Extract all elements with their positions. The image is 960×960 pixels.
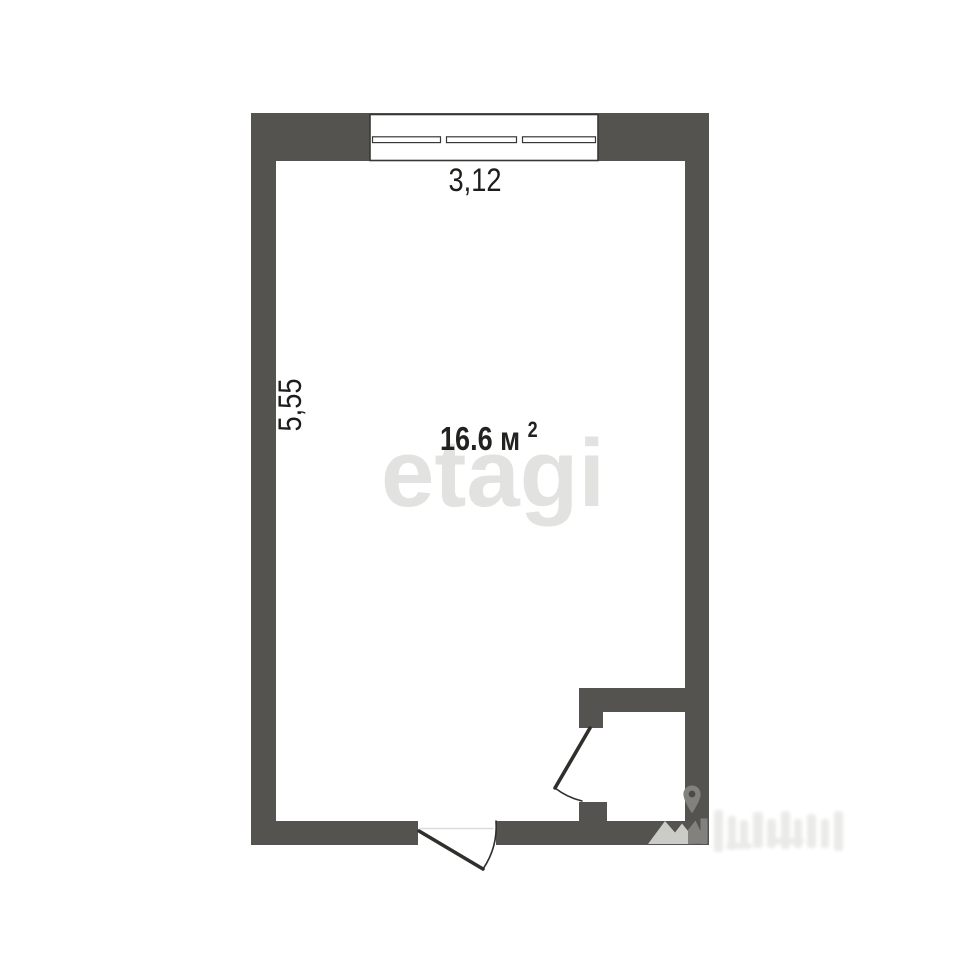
window-glazing-segment xyxy=(523,137,596,143)
interior-door-swing-arc xyxy=(555,788,582,801)
floorplan-drawing: etagi 3,12 5,55 16.6 м 2 xyxy=(0,0,960,960)
window xyxy=(370,115,598,161)
room-area-superscript: 2 xyxy=(528,418,538,442)
wall-right xyxy=(685,113,709,845)
wall-left xyxy=(251,113,276,845)
interior-door-leaf xyxy=(555,728,590,788)
partition-door-jamb-lower xyxy=(579,802,607,821)
doors xyxy=(419,728,590,869)
mountains-icon xyxy=(701,819,708,845)
illegible-watermark-text xyxy=(714,810,843,852)
entry-door-leaf xyxy=(419,831,483,869)
room-area-label: 16.6 м 2 xyxy=(440,418,538,457)
location-pin-hole xyxy=(689,791,696,798)
partition-door-jamb-upper xyxy=(579,712,603,728)
room-area-value: 16.6 м xyxy=(440,422,520,458)
wall-bottom-left-segment xyxy=(251,821,418,845)
window-glazing-segment xyxy=(447,137,517,143)
dimension-label-top: 3,12 xyxy=(449,163,502,199)
corner-watermark xyxy=(648,786,843,853)
dimension-label-left: 5,55 xyxy=(273,379,309,432)
floorplan-page: etagi 3,12 5,55 16.6 м 2 xyxy=(0,0,960,960)
partition-wall-horizontal xyxy=(579,688,685,712)
window-glazing-segment xyxy=(373,137,441,143)
